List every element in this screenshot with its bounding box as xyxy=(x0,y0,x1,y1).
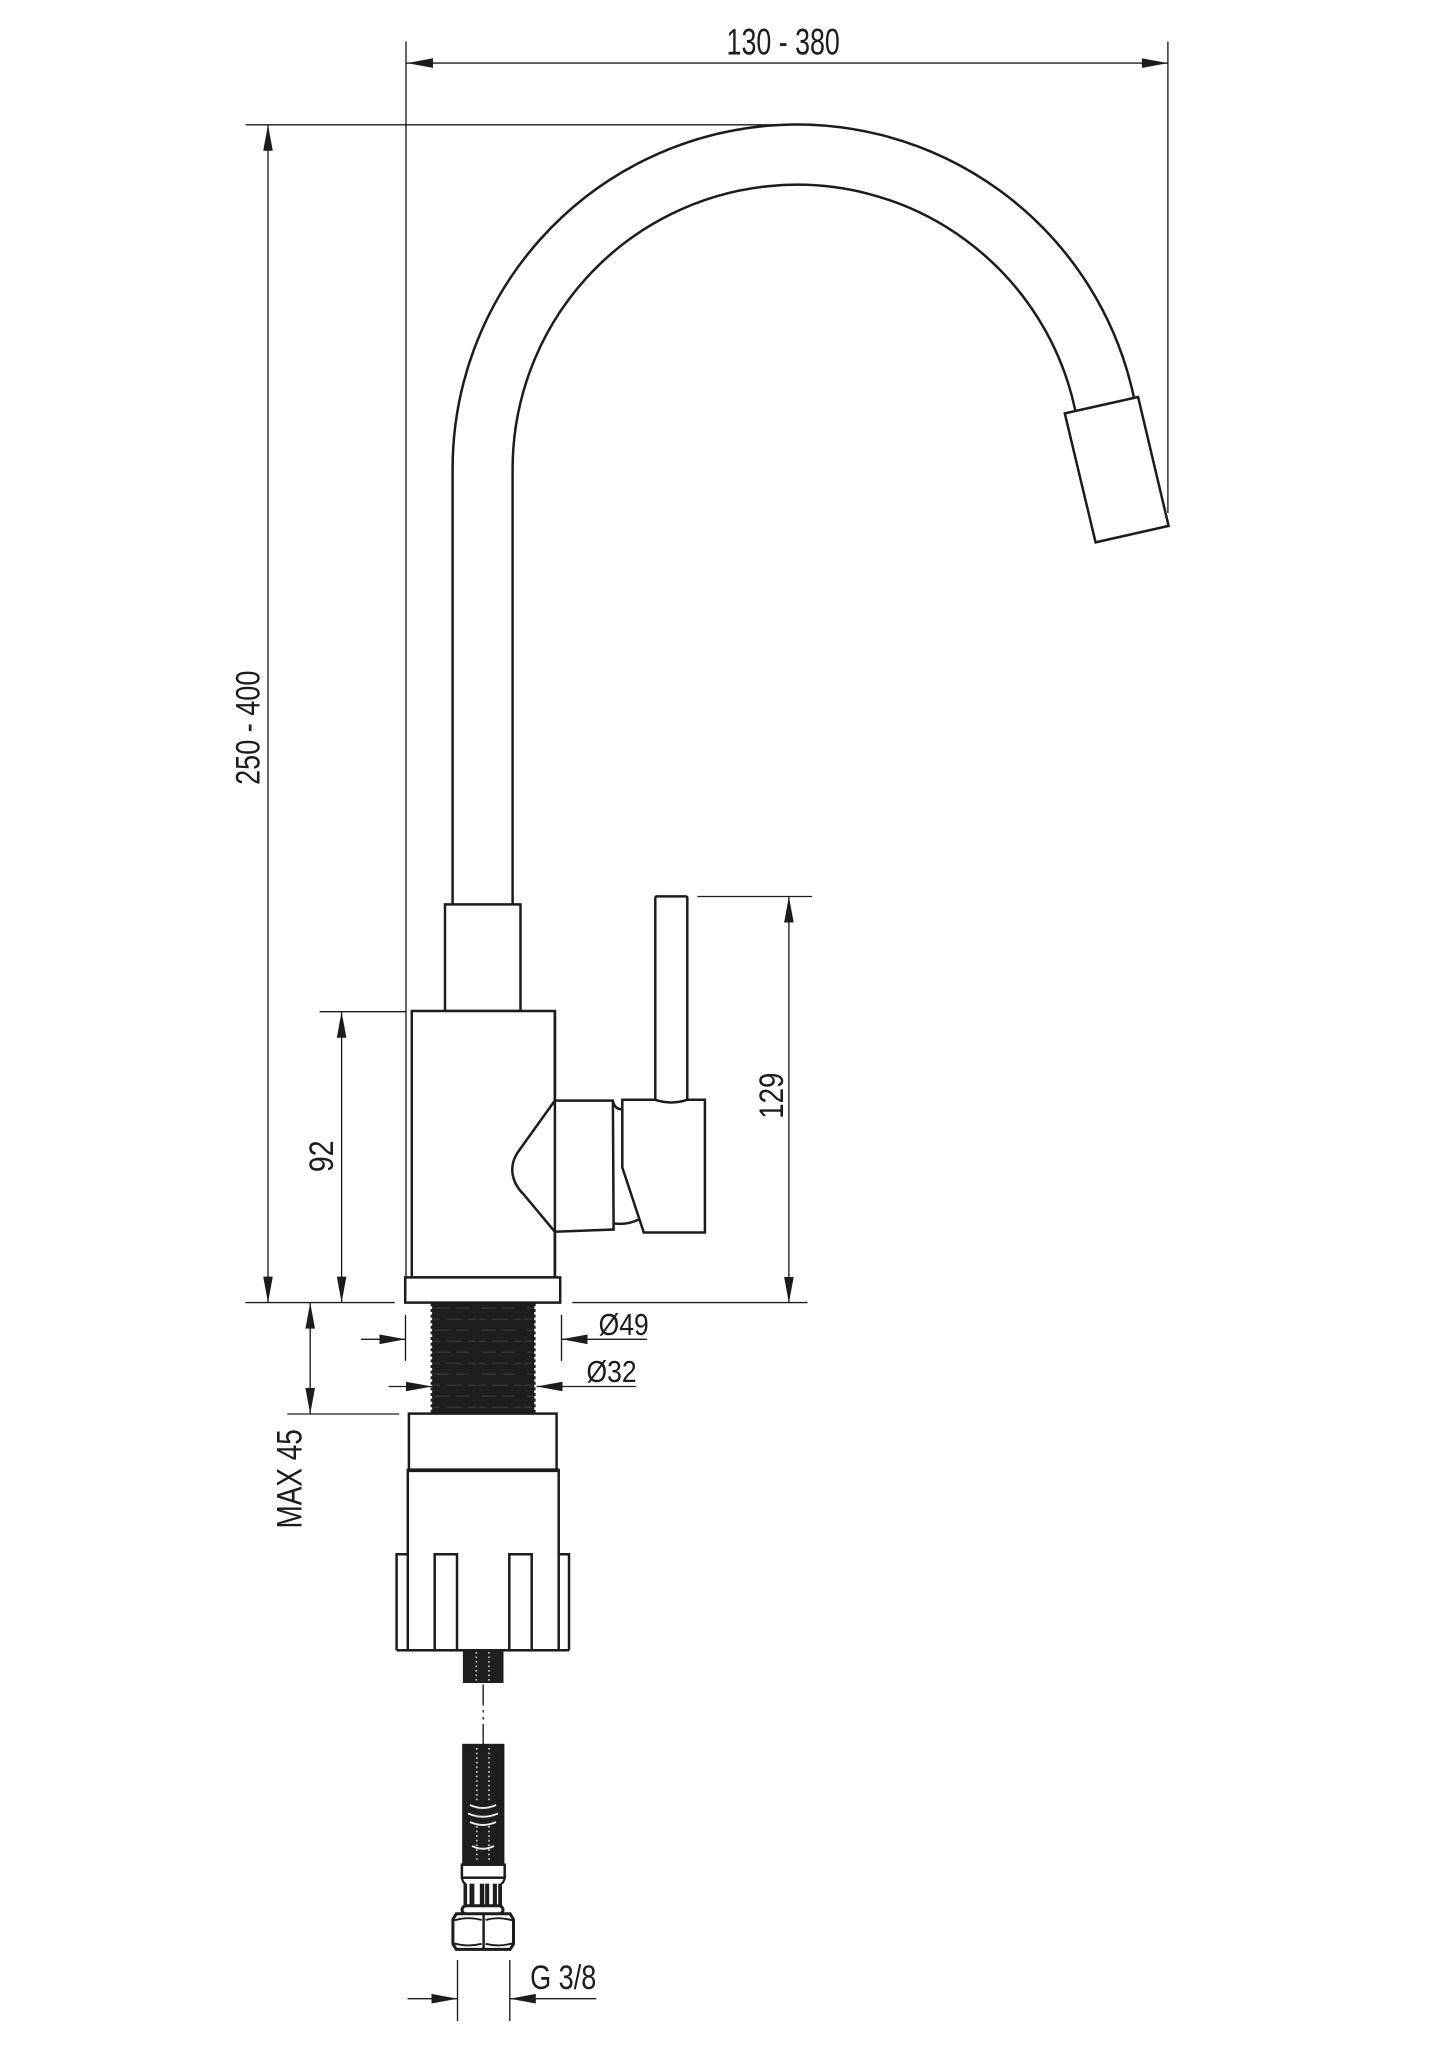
svg-text:Ø32: Ø32 xyxy=(587,1356,637,1390)
svg-text:MAX 45: MAX 45 xyxy=(269,1429,309,1528)
svg-text:130 - 380: 130 - 380 xyxy=(727,21,840,62)
svg-text:Ø49: Ø49 xyxy=(599,1308,649,1342)
svg-text:250 - 400: 250 - 400 xyxy=(228,671,267,785)
svg-text:92: 92 xyxy=(303,1140,341,1172)
svg-text:G 3/8: G 3/8 xyxy=(530,1958,596,1997)
svg-text:129: 129 xyxy=(752,1073,791,1119)
